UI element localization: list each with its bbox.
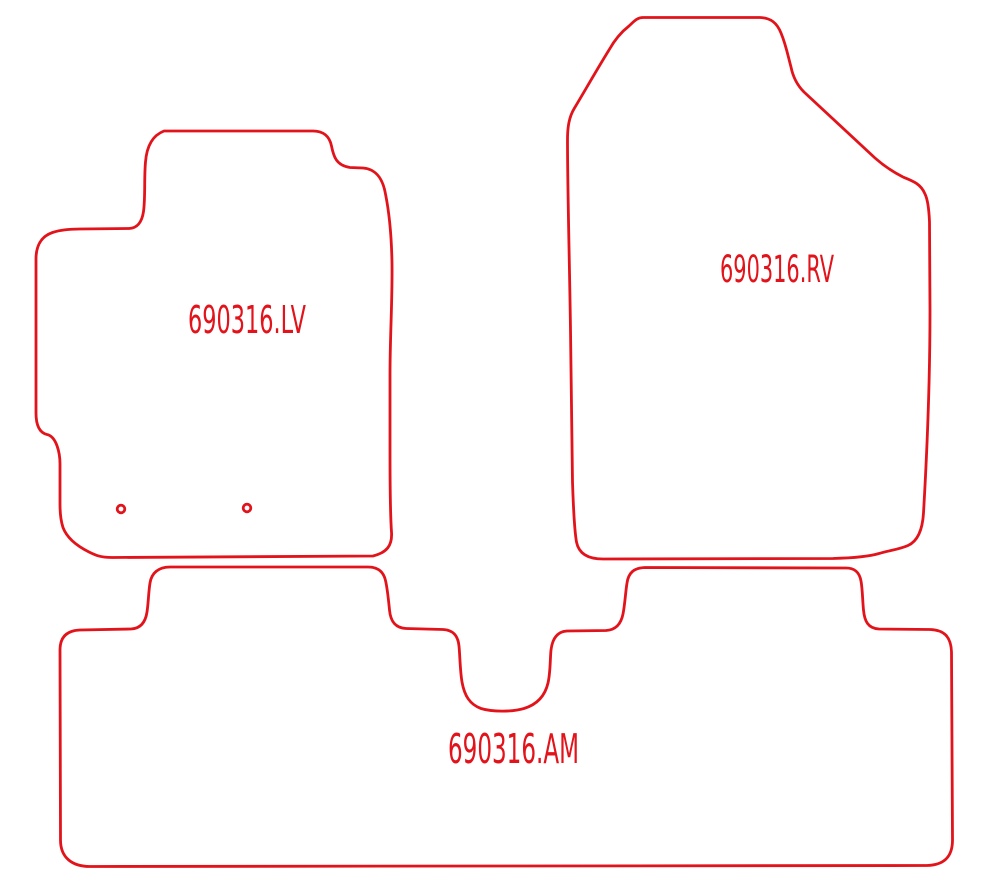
mat-outline-front-left xyxy=(36,131,392,558)
mat-label-front-left: 690316.LV xyxy=(188,298,306,342)
drawing-canvas: 690316.LV 690316.RV 690316.AM xyxy=(0,0,995,883)
mat-label-front-right: 690316.RV xyxy=(720,248,834,291)
mat-label-rear: 690316.AM xyxy=(448,725,579,773)
mat-pattern-svg: 690316.LV 690316.RV 690316.AM xyxy=(0,0,995,883)
fixing-holes xyxy=(117,504,251,513)
mat-outline-rear xyxy=(60,567,953,867)
